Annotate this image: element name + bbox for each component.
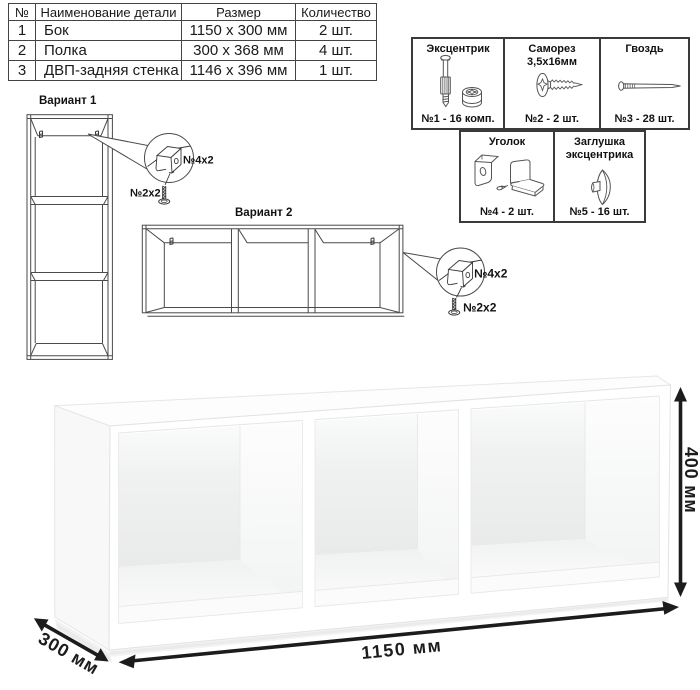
svg-text:№2х2: №2х2 xyxy=(130,188,161,200)
svg-text:№4х2: №4х2 xyxy=(474,267,508,281)
svg-text:№2х2: №2х2 xyxy=(463,301,497,315)
svg-text:400 мм: 400 мм xyxy=(681,447,700,513)
svg-text:1150 мм: 1150 мм xyxy=(360,635,443,663)
svg-text:№4х2: №4х2 xyxy=(183,155,214,167)
